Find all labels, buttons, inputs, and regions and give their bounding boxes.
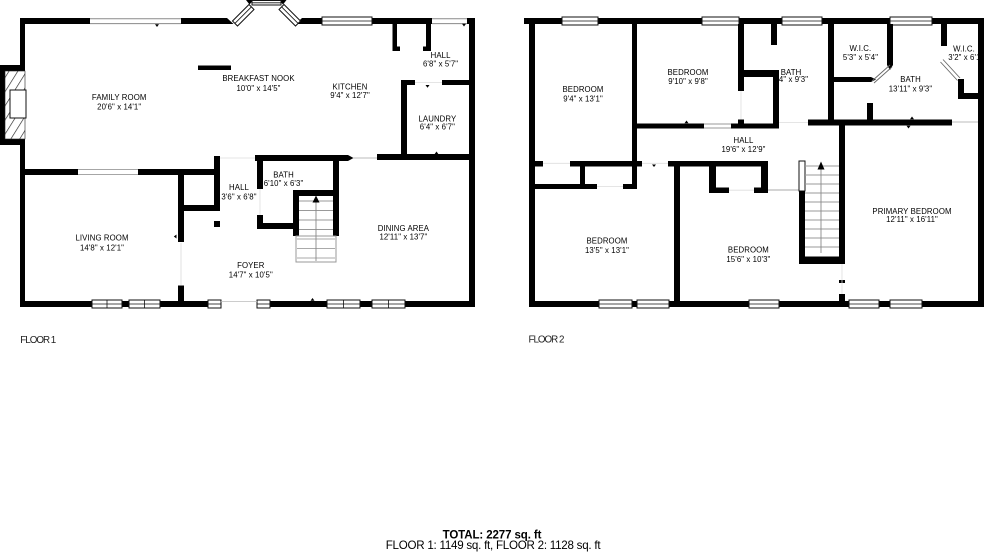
svg-text:13'5" x 13'1": 13'5" x 13'1" (585, 246, 629, 255)
svg-text:BATH: BATH (900, 75, 921, 84)
svg-text:6'8" x 5'7": 6'8" x 5'7" (423, 59, 458, 68)
svg-text:3'6" x 6'8": 3'6" x 6'8" (221, 193, 256, 202)
svg-text:15'6" x 10'3": 15'6" x 10'3" (726, 255, 770, 264)
svg-text:FAMILY ROOM: FAMILY ROOM (92, 93, 147, 102)
svg-text:BEDROOM: BEDROOM (563, 85, 604, 94)
svg-text:FLOOR 2: FLOOR 2 (529, 335, 564, 346)
svg-text:LIVING ROOM: LIVING ROOM (75, 234, 128, 243)
svg-text:13'11" x 9'3": 13'11" x 9'3" (889, 85, 933, 94)
svg-text:BEDROOM: BEDROOM (668, 68, 709, 77)
svg-text:W.I.C.: W.I.C. (849, 44, 871, 53)
svg-text:12'11" x 16'11": 12'11" x 16'11" (886, 215, 938, 224)
svg-text:19'6" x 12'9": 19'6" x 12'9" (721, 145, 765, 154)
svg-text:6'4" x 6'7": 6'4" x 6'7" (420, 123, 455, 132)
svg-text:9'4" x 13'1": 9'4" x 13'1" (563, 94, 603, 103)
svg-text:6'10" x 6'3": 6'10" x 6'3" (264, 179, 304, 188)
svg-text:BREAKFAST NOOK: BREAKFAST NOOK (222, 74, 295, 83)
svg-text:20'6" x 14'1": 20'6" x 14'1" (97, 102, 141, 111)
svg-text:5'3" x 5'4": 5'3" x 5'4" (843, 53, 878, 62)
svg-text:HALL: HALL (734, 136, 754, 145)
svg-text:14'8" x 12'1": 14'8" x 12'1" (80, 243, 124, 252)
svg-text:HALL: HALL (229, 183, 249, 192)
svg-text:9'10" x 9'8": 9'10" x 9'8" (668, 77, 708, 86)
svg-text:9'4" x 12'7": 9'4" x 12'7" (330, 91, 370, 100)
svg-text:14'7" x 10'5": 14'7" x 10'5" (229, 270, 273, 279)
svg-text:10'0" x 14'5": 10'0" x 14'5" (236, 84, 280, 93)
svg-text:KITCHEN: KITCHEN (333, 82, 368, 91)
svg-text:DINING AREA: DINING AREA (378, 224, 430, 233)
svg-text:BEDROOM: BEDROOM (728, 246, 769, 255)
svg-text:FLOOR 1: 1149 sq. ft, FLOOR 2:: FLOOR 1: 1149 sq. ft, FLOOR 2: 1128 sq. … (386, 539, 602, 552)
svg-text:12'11" x 13'7": 12'11" x 13'7" (379, 233, 427, 242)
svg-text:BEDROOM: BEDROOM (587, 236, 628, 245)
svg-text:FLOOR 1: FLOOR 1 (20, 335, 55, 346)
svg-text:FOYER: FOYER (237, 261, 265, 270)
